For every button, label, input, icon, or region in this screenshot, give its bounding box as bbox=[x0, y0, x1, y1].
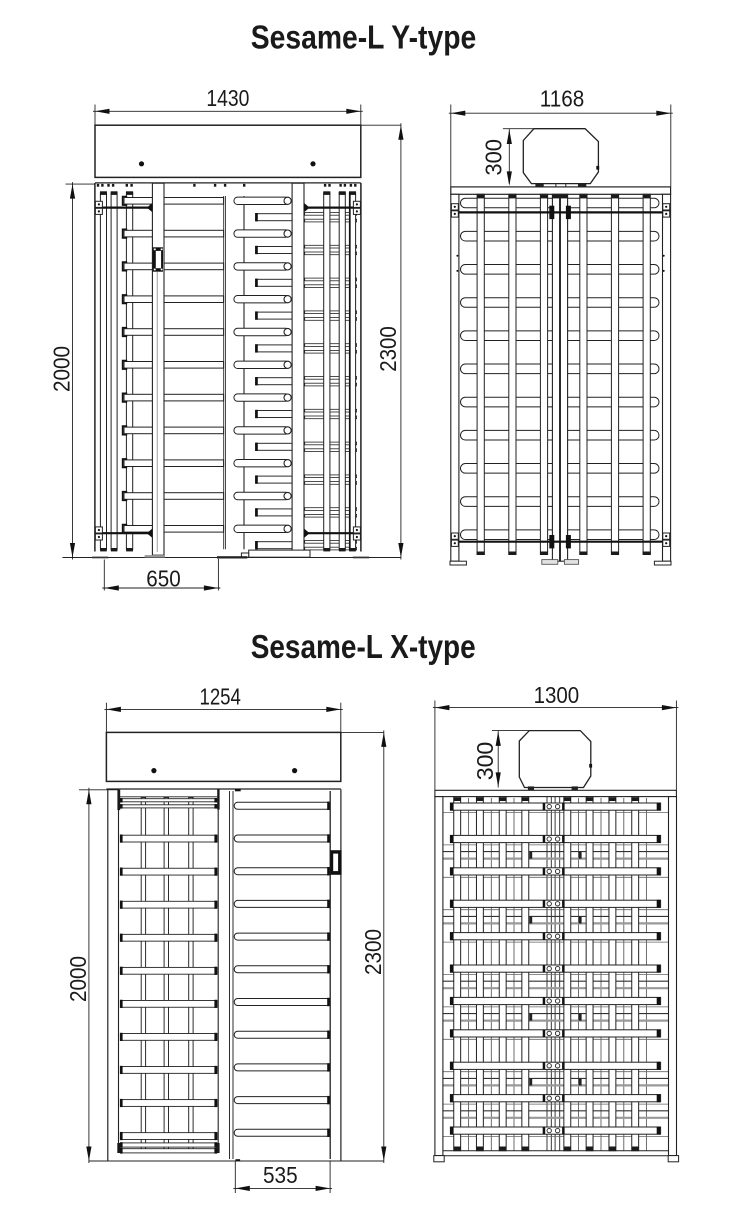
svg-text:1300: 1300 bbox=[534, 682, 580, 708]
svg-text:1430: 1430 bbox=[206, 85, 249, 111]
svg-text:Sesame-L X-type: Sesame-L X-type bbox=[251, 628, 476, 665]
svg-text:Sesame-L Y-type: Sesame-L Y-type bbox=[251, 18, 477, 55]
svg-text:300: 300 bbox=[472, 742, 498, 781]
svg-text:650: 650 bbox=[146, 565, 180, 591]
svg-text:2300: 2300 bbox=[375, 326, 401, 372]
svg-text:1254: 1254 bbox=[199, 684, 241, 710]
svg-text:1168: 1168 bbox=[540, 85, 585, 111]
svg-text:2000: 2000 bbox=[49, 346, 75, 392]
svg-text:2000: 2000 bbox=[65, 956, 91, 1002]
svg-text:535: 535 bbox=[263, 1162, 298, 1188]
svg-text:2300: 2300 bbox=[360, 929, 386, 975]
svg-text:300: 300 bbox=[481, 139, 507, 176]
